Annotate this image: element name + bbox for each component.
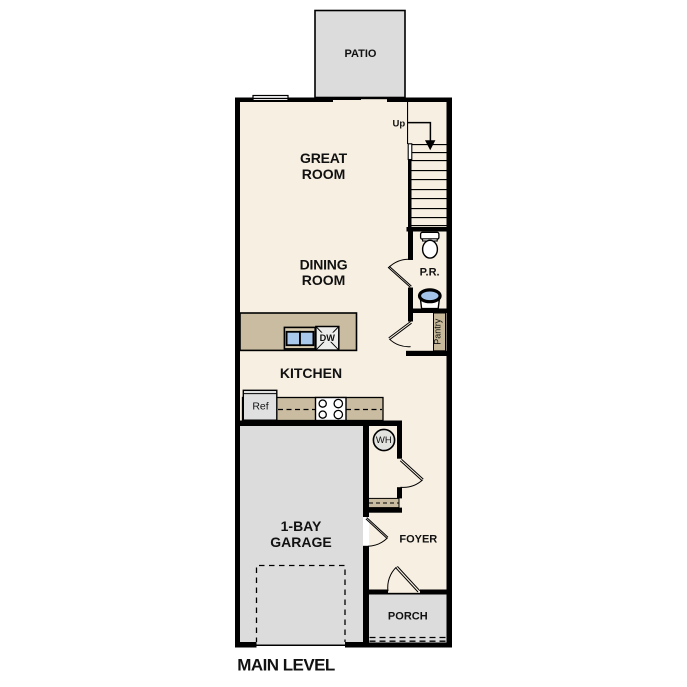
svg-text:Pantry: Pantry bbox=[433, 318, 443, 345]
svg-text:KITCHEN: KITCHEN bbox=[280, 365, 342, 381]
svg-text:GREAT: GREAT bbox=[300, 150, 348, 166]
svg-text:DINING: DINING bbox=[300, 257, 348, 273]
svg-text:PATIO: PATIO bbox=[345, 48, 377, 60]
svg-text:ROOM: ROOM bbox=[302, 166, 346, 182]
svg-text:Up: Up bbox=[393, 119, 406, 130]
svg-text:FOYER: FOYER bbox=[399, 534, 437, 546]
svg-text:MAIN LEVEL: MAIN LEVEL bbox=[237, 656, 335, 675]
svg-text:PORCH: PORCH bbox=[388, 611, 428, 623]
svg-text:DW: DW bbox=[320, 333, 336, 343]
svg-text:1-BAY: 1-BAY bbox=[281, 518, 322, 534]
svg-text:WH: WH bbox=[376, 435, 392, 446]
svg-text:ROOM: ROOM bbox=[302, 272, 346, 288]
svg-text:P.R.: P.R. bbox=[420, 267, 440, 279]
svg-text:Ref: Ref bbox=[252, 400, 268, 412]
svg-text:GARAGE: GARAGE bbox=[270, 534, 331, 550]
